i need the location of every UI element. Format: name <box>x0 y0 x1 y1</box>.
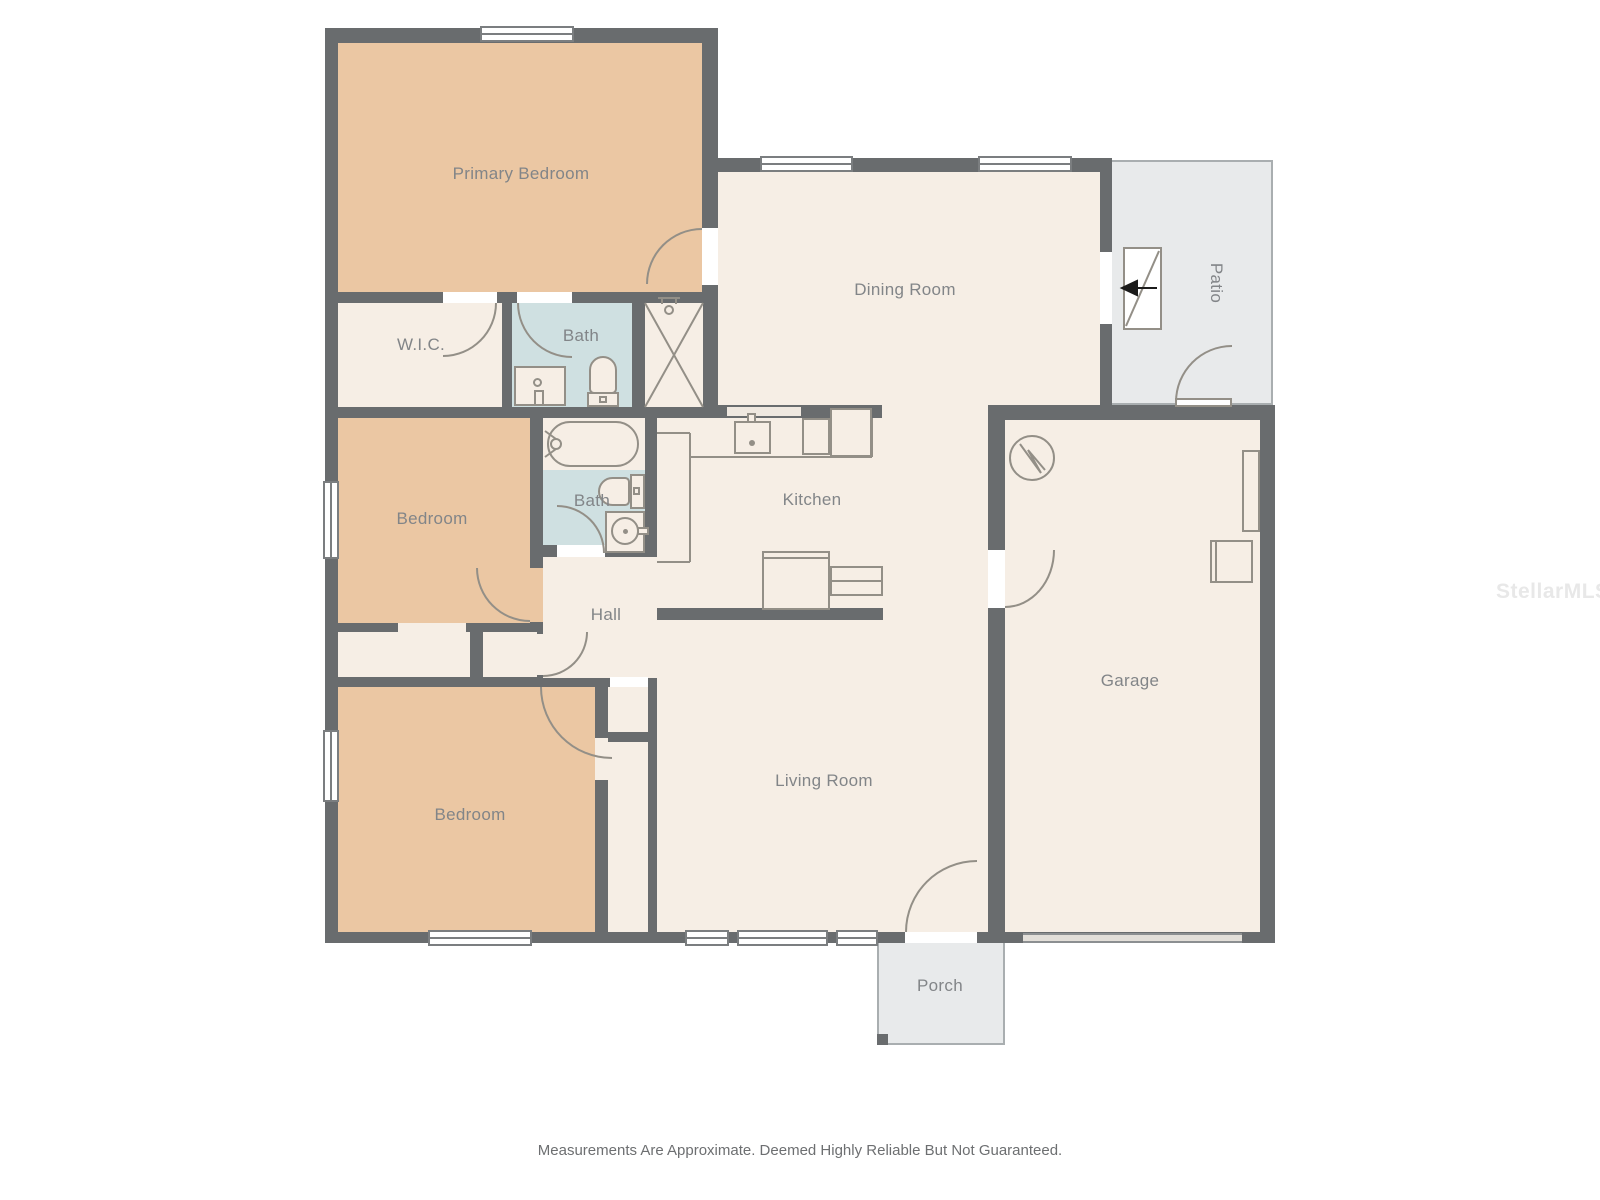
room-label-bath-hall: Bath <box>574 491 610 511</box>
room-label-bedroom-front: Bedroom <box>434 805 505 825</box>
shower-x-icon <box>645 303 703 407</box>
tub-drain-icon <box>551 439 561 449</box>
room-label-dining: Dining Room <box>854 280 956 300</box>
room-label-hall: Hall <box>591 605 622 625</box>
room-label-living: Living Room <box>775 771 873 791</box>
shower-head-dot <box>665 306 673 314</box>
fixture-lines <box>0 0 1600 1200</box>
watermark: StellarMLS <box>1496 580 1600 604</box>
room-label-patio: Patio <box>1206 263 1226 303</box>
water-heater-coil <box>1020 444 1045 473</box>
room-label-bath-primary: Bath <box>563 326 599 346</box>
room-label-bedroom-middle: Bedroom <box>396 509 467 529</box>
shower-head-icon <box>658 298 680 304</box>
room-label-wic: W.I.C. <box>397 335 445 355</box>
floor-plan: Primary Bedroom W.I.C. Bath Dining Room … <box>0 0 1600 1200</box>
room-label-porch: Porch <box>917 976 963 996</box>
room-label-kitchen: Kitchen <box>783 490 842 510</box>
room-label-primary-bedroom: Primary Bedroom <box>453 164 590 184</box>
room-label-garage: Garage <box>1101 671 1160 691</box>
disclaimer-text: Measurements Are Approximate. Deemed Hig… <box>0 1142 1600 1159</box>
